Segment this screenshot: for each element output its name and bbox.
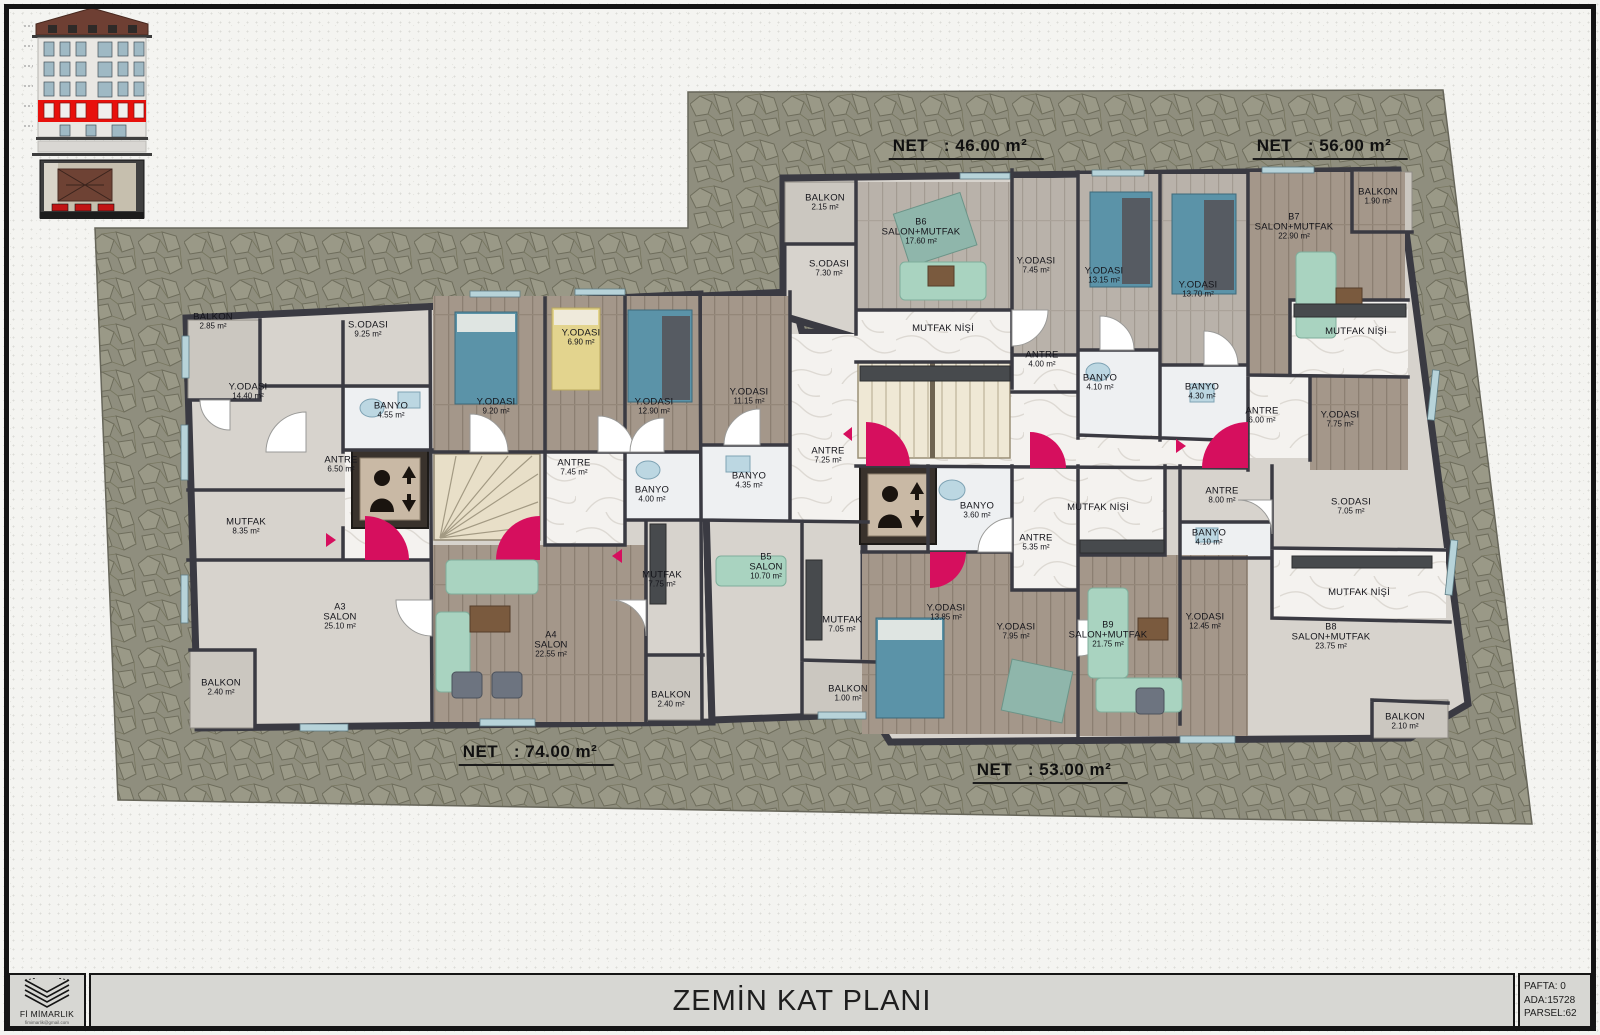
room-area: 13.85 m² bbox=[927, 614, 966, 623]
room-label: B6SALON+MUTFAK17.60 m² bbox=[882, 218, 961, 247]
room-label: B5SALON10.70 m² bbox=[749, 553, 782, 582]
room-label: MUTFAK NİŞİ bbox=[1325, 327, 1387, 337]
room-label: MUTFAK NİŞİ bbox=[1067, 503, 1129, 513]
room-label: BALKON1.90 m² bbox=[1358, 188, 1398, 207]
room-label: ANTRE4.00 m² bbox=[1025, 351, 1058, 370]
room-label: BANYO4.55 m² bbox=[374, 402, 408, 421]
room-area: 4.10 m² bbox=[1083, 384, 1117, 393]
room-area: 2.40 m² bbox=[201, 689, 241, 698]
room-label: BALKON2.40 m² bbox=[651, 691, 691, 710]
room-label: BALKON1.00 m² bbox=[828, 685, 868, 704]
room-area: 4.00 m² bbox=[635, 496, 669, 505]
room-label: Y.ODASI12.45 m² bbox=[1186, 613, 1225, 632]
parsel-value: PARSEL:62 bbox=[1524, 1008, 1586, 1021]
room-label: ANTRE7.45 m² bbox=[557, 459, 590, 478]
room-label: MUTFAK NİŞİ bbox=[912, 324, 974, 334]
room-area: 8.00 m² bbox=[1205, 497, 1238, 506]
room-label: A3SALON25.10 m² bbox=[323, 603, 356, 632]
room-area: 4.55 m² bbox=[374, 412, 408, 421]
room-label: B8SALON+MUTFAK23.75 m² bbox=[1292, 623, 1371, 652]
room-area: 17.60 m² bbox=[882, 238, 961, 247]
room-label: BANYO4.35 m² bbox=[732, 472, 766, 491]
room-label: S.ODASI7.05 m² bbox=[1331, 498, 1371, 517]
room-area: 23.75 m² bbox=[1292, 643, 1371, 652]
room-area: 4.00 m² bbox=[1025, 361, 1058, 370]
room-area: 14.40 m² bbox=[229, 393, 268, 402]
room-area: 12.45 m² bbox=[1186, 623, 1225, 632]
drawing-title: ZEMİN KAT PLANI bbox=[673, 985, 932, 1018]
room-area: 6.50 m² bbox=[324, 466, 357, 475]
room-area: 22.55 m² bbox=[534, 651, 567, 660]
room-label: Y.ODASI11.15 m² bbox=[730, 388, 769, 407]
room-area: 2.10 m² bbox=[1385, 723, 1425, 732]
plan-labels-layer: BALKON2.85 m²S.ODASI9.25 m²Y.ODASI14.40 … bbox=[0, 0, 1600, 1035]
room-area: 2.85 m² bbox=[193, 323, 233, 332]
room-area: 10.70 m² bbox=[749, 573, 782, 582]
room-area: 7.05 m² bbox=[1331, 508, 1371, 517]
room-area: 7.75 m² bbox=[1321, 421, 1360, 430]
room-label: Y.ODASI12.90 m² bbox=[635, 398, 674, 417]
room-label: BALKON2.15 m² bbox=[805, 194, 845, 213]
room-label: Y.ODASI13.15 m² bbox=[1085, 267, 1124, 286]
room-label: MUTFAK NİŞİ bbox=[1328, 588, 1390, 598]
net-area-label: NET : 56.00 m² bbox=[1253, 136, 1408, 160]
room-area: 25.10 m² bbox=[323, 623, 356, 632]
room-label: BANYO4.30 m² bbox=[1185, 383, 1219, 402]
parcel-info-box: PAFTA: 0 ADA:15728 PARSEL:62 bbox=[1518, 973, 1592, 1029]
room-area: 9.25 m² bbox=[348, 331, 388, 340]
room-area: 7.45 m² bbox=[557, 469, 590, 478]
room-area: 4.10 m² bbox=[1192, 539, 1226, 548]
room-label: BALKON2.85 m² bbox=[193, 313, 233, 332]
room-area: 7.95 m² bbox=[997, 633, 1036, 642]
net-area-label: NET : 74.00 m² bbox=[459, 742, 614, 766]
room-area: 1.00 m² bbox=[828, 695, 868, 704]
firm-name: Fİ MİMARLIK bbox=[20, 1009, 74, 1019]
room-label: ANTRE8.00 m² bbox=[1205, 487, 1238, 506]
room-area: 13.15 m² bbox=[1085, 277, 1124, 286]
room-area: 7.30 m² bbox=[809, 270, 849, 279]
room-label: Y.ODASI7.45 m² bbox=[1017, 257, 1056, 276]
room-label: ANTRE7.25 m² bbox=[811, 447, 844, 466]
room-area: 6.90 m² bbox=[562, 339, 601, 348]
room-area: 9.20 m² bbox=[477, 408, 516, 417]
room-area: 7.25 m² bbox=[811, 457, 844, 466]
floor-plan-sheet: { "title_block": { "drawing_title": "ZEM… bbox=[0, 0, 1600, 1035]
room-area: 12.90 m² bbox=[635, 408, 674, 417]
room-name: MUTFAK NİŞİ bbox=[1325, 327, 1387, 337]
room-label: BANYO4.10 m² bbox=[1083, 374, 1117, 393]
room-label: BANYO4.00 m² bbox=[635, 486, 669, 505]
room-label: MUTFAK8.35 m² bbox=[226, 518, 266, 537]
room-label: S.ODASI7.30 m² bbox=[809, 260, 849, 279]
room-label: Y.ODASI6.90 m² bbox=[562, 329, 601, 348]
room-area: 8.35 m² bbox=[226, 528, 266, 537]
room-label: BANYO3.60 m² bbox=[960, 502, 994, 521]
room-area: 11.15 m² bbox=[730, 398, 769, 407]
room-name: MUTFAK NİŞİ bbox=[912, 324, 974, 334]
pafta-value: PAFTA: 0 bbox=[1524, 981, 1586, 994]
room-area: 2.15 m² bbox=[805, 204, 845, 213]
room-label: ANTRE5.35 m² bbox=[1019, 534, 1052, 553]
room-label: B7SALON+MUTFAK22.90 m² bbox=[1255, 213, 1334, 242]
ada-value: ADA:15728 bbox=[1524, 995, 1586, 1008]
room-label: Y.ODASI14.40 m² bbox=[229, 383, 268, 402]
room-area: 13.70 m² bbox=[1179, 291, 1218, 300]
room-area: 4.35 m² bbox=[732, 482, 766, 491]
room-area: 7.75 m² bbox=[642, 581, 682, 590]
room-label: Y.ODASI13.70 m² bbox=[1179, 281, 1218, 300]
room-label: BANYO4.10 m² bbox=[1192, 529, 1226, 548]
drawing-title-box: ZEMİN KAT PLANI bbox=[89, 973, 1515, 1029]
room-area: 6.00 m² bbox=[1245, 417, 1278, 426]
room-label: BALKON2.10 m² bbox=[1385, 713, 1425, 732]
firm-contact: fimimarlik@gmail.com bbox=[25, 1020, 69, 1025]
room-label: Y.ODASI13.85 m² bbox=[927, 604, 966, 623]
net-area-label: NET : 46.00 m² bbox=[889, 136, 1044, 160]
room-area: 7.05 m² bbox=[822, 626, 862, 635]
room-name: MUTFAK NİŞİ bbox=[1067, 503, 1129, 513]
room-label: S.ODASI9.25 m² bbox=[348, 321, 388, 340]
room-label: ANTRE6.00 m² bbox=[1245, 407, 1278, 426]
room-area: 22.90 m² bbox=[1255, 233, 1334, 242]
room-label: MUTFAK7.75 m² bbox=[642, 571, 682, 590]
room-area: 21.75 m² bbox=[1069, 641, 1148, 650]
room-label: MUTFAK7.05 m² bbox=[822, 616, 862, 635]
room-label: A4SALON22.55 m² bbox=[534, 631, 567, 660]
room-area: 1.90 m² bbox=[1358, 198, 1398, 207]
room-label: Y.ODASI9.20 m² bbox=[477, 398, 516, 417]
room-label: Y.ODASI7.95 m² bbox=[997, 623, 1036, 642]
net-area-label: NET : 53.00 m² bbox=[973, 760, 1128, 784]
room-area: 5.35 m² bbox=[1019, 544, 1052, 553]
room-label: Y.ODASI7.75 m² bbox=[1321, 411, 1360, 430]
room-area: 7.45 m² bbox=[1017, 267, 1056, 276]
room-label: BALKON2.40 m² bbox=[201, 679, 241, 698]
firm-logo-box: Fİ MİMARLIK fimimarlik@gmail.com bbox=[8, 973, 86, 1029]
room-area: 2.40 m² bbox=[651, 701, 691, 710]
room-label: B9SALON+MUTFAK21.75 m² bbox=[1069, 621, 1148, 650]
room-area: 3.60 m² bbox=[960, 512, 994, 521]
firm-logo-icon bbox=[21, 978, 73, 1008]
room-name: MUTFAK NİŞİ bbox=[1328, 588, 1390, 598]
room-label: ANTRE6.50 m² bbox=[324, 456, 357, 475]
room-area: 4.30 m² bbox=[1185, 393, 1219, 402]
title-block: Fİ MİMARLIK fimimarlik@gmail.com ZEMİN K… bbox=[8, 973, 1592, 1029]
